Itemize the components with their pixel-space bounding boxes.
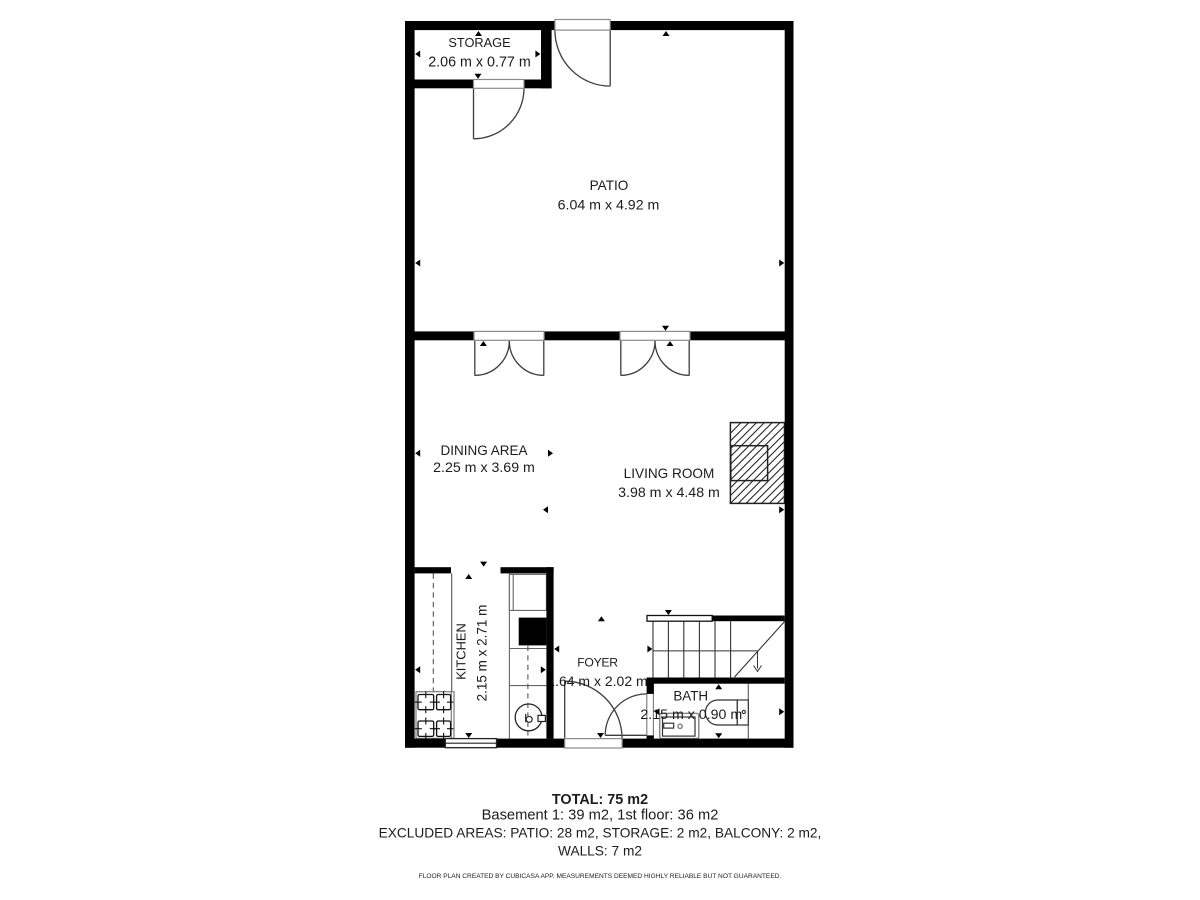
svg-text:BATH: BATH <box>673 689 708 704</box>
svg-text:6.04 m x 4.92 m: 6.04 m x 4.92 m <box>558 197 660 213</box>
svg-text:KITCHEN: KITCHEN <box>454 623 469 680</box>
svg-text:FOYER: FOYER <box>577 656 618 670</box>
svg-text:FLOOR PLAN CREATED BY CUBICASA: FLOOR PLAN CREATED BY CUBICASA APP. MEAS… <box>419 873 782 880</box>
svg-text:DINING AREA: DINING AREA <box>440 443 527 458</box>
svg-text:STORAGE: STORAGE <box>448 35 510 50</box>
svg-text:3.98 m x 4.48 m: 3.98 m x 4.48 m <box>618 485 720 501</box>
svg-text:2.15 m x 0.90 m: 2.15 m x 0.90 m <box>640 707 742 723</box>
svg-text:TOTAL: 75 m2: TOTAL: 75 m2 <box>552 792 648 808</box>
svg-text:EXCLUDED AREAS: PATIO: 28 m2,: EXCLUDED AREAS: PATIO: 28 m2, STORAGE: 2… <box>379 826 822 841</box>
svg-text:WALLS: 7 m2: WALLS: 7 m2 <box>558 844 642 859</box>
svg-text:1.64 m x 2.02 m: 1.64 m x 2.02 m <box>547 673 647 689</box>
svg-text:2.06 m x 0.77 m: 2.06 m x 0.77 m <box>428 55 531 71</box>
svg-text:2.15 m x 2.71 m: 2.15 m x 2.71 m <box>475 605 490 702</box>
svg-text:2.25 m x 3.69 m: 2.25 m x 3.69 m <box>433 460 535 476</box>
svg-text:Basement 1: 39 m2, 1st floor:: Basement 1: 39 m2, 1st floor: 36 m2 <box>482 808 719 824</box>
svg-text:PATIO: PATIO <box>590 178 629 193</box>
svg-text:LIVING ROOM: LIVING ROOM <box>624 466 715 481</box>
